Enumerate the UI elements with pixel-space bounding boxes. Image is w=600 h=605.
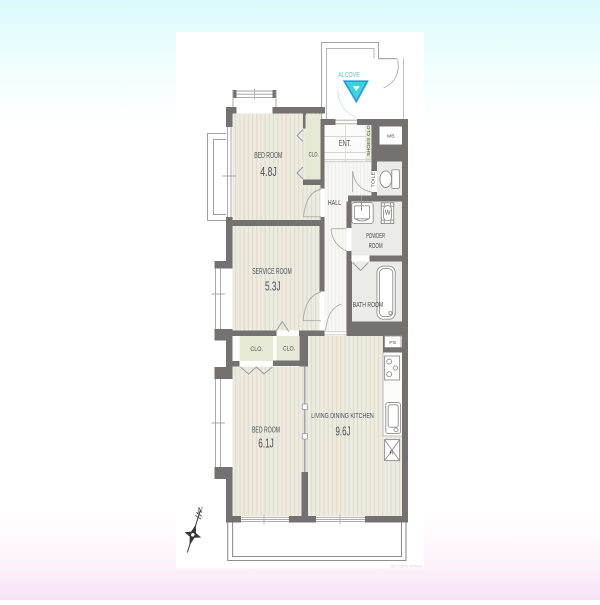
svg-text:R: R bbox=[390, 451, 394, 457]
svg-text:ENT.: ENT. bbox=[339, 139, 352, 148]
svg-text:HALL: HALL bbox=[328, 198, 342, 207]
svg-text:BED ROOM: BED ROOM bbox=[254, 151, 282, 160]
svg-text:CLO.: CLO. bbox=[309, 151, 319, 158]
svg-text:MB: MB bbox=[387, 133, 395, 138]
svg-text:SHOES CLO.: SHOES CLO. bbox=[366, 124, 371, 156]
svg-text:ROOM: ROOM bbox=[369, 243, 383, 250]
svg-text:JIO-0000 00000: JIO-0000 00000 bbox=[390, 565, 423, 569]
svg-text:SERVICE ROOM: SERVICE ROOM bbox=[252, 267, 292, 276]
svg-text:BATH ROOM: BATH ROOM bbox=[353, 302, 384, 309]
svg-text:LIVING DINING KITCHEN: LIVING DINING KITCHEN bbox=[311, 413, 374, 420]
svg-text:9.6J: 9.6J bbox=[336, 425, 351, 439]
svg-text:6.1J: 6.1J bbox=[258, 437, 274, 451]
svg-text:POWDER: POWDER bbox=[366, 233, 385, 240]
svg-text:5.3J: 5.3J bbox=[265, 280, 281, 294]
svg-text:TOILET: TOILET bbox=[370, 168, 375, 188]
svg-text:CLO.: CLO. bbox=[283, 346, 295, 353]
svg-text:W: W bbox=[385, 211, 391, 217]
svg-text:CLO.: CLO. bbox=[250, 346, 263, 353]
svg-text:BED ROOM: BED ROOM bbox=[252, 426, 280, 435]
svg-text:4.8J: 4.8J bbox=[260, 165, 277, 179]
svg-text:ALCOVE: ALCOVE bbox=[338, 70, 360, 79]
svg-text:PS: PS bbox=[389, 340, 396, 345]
